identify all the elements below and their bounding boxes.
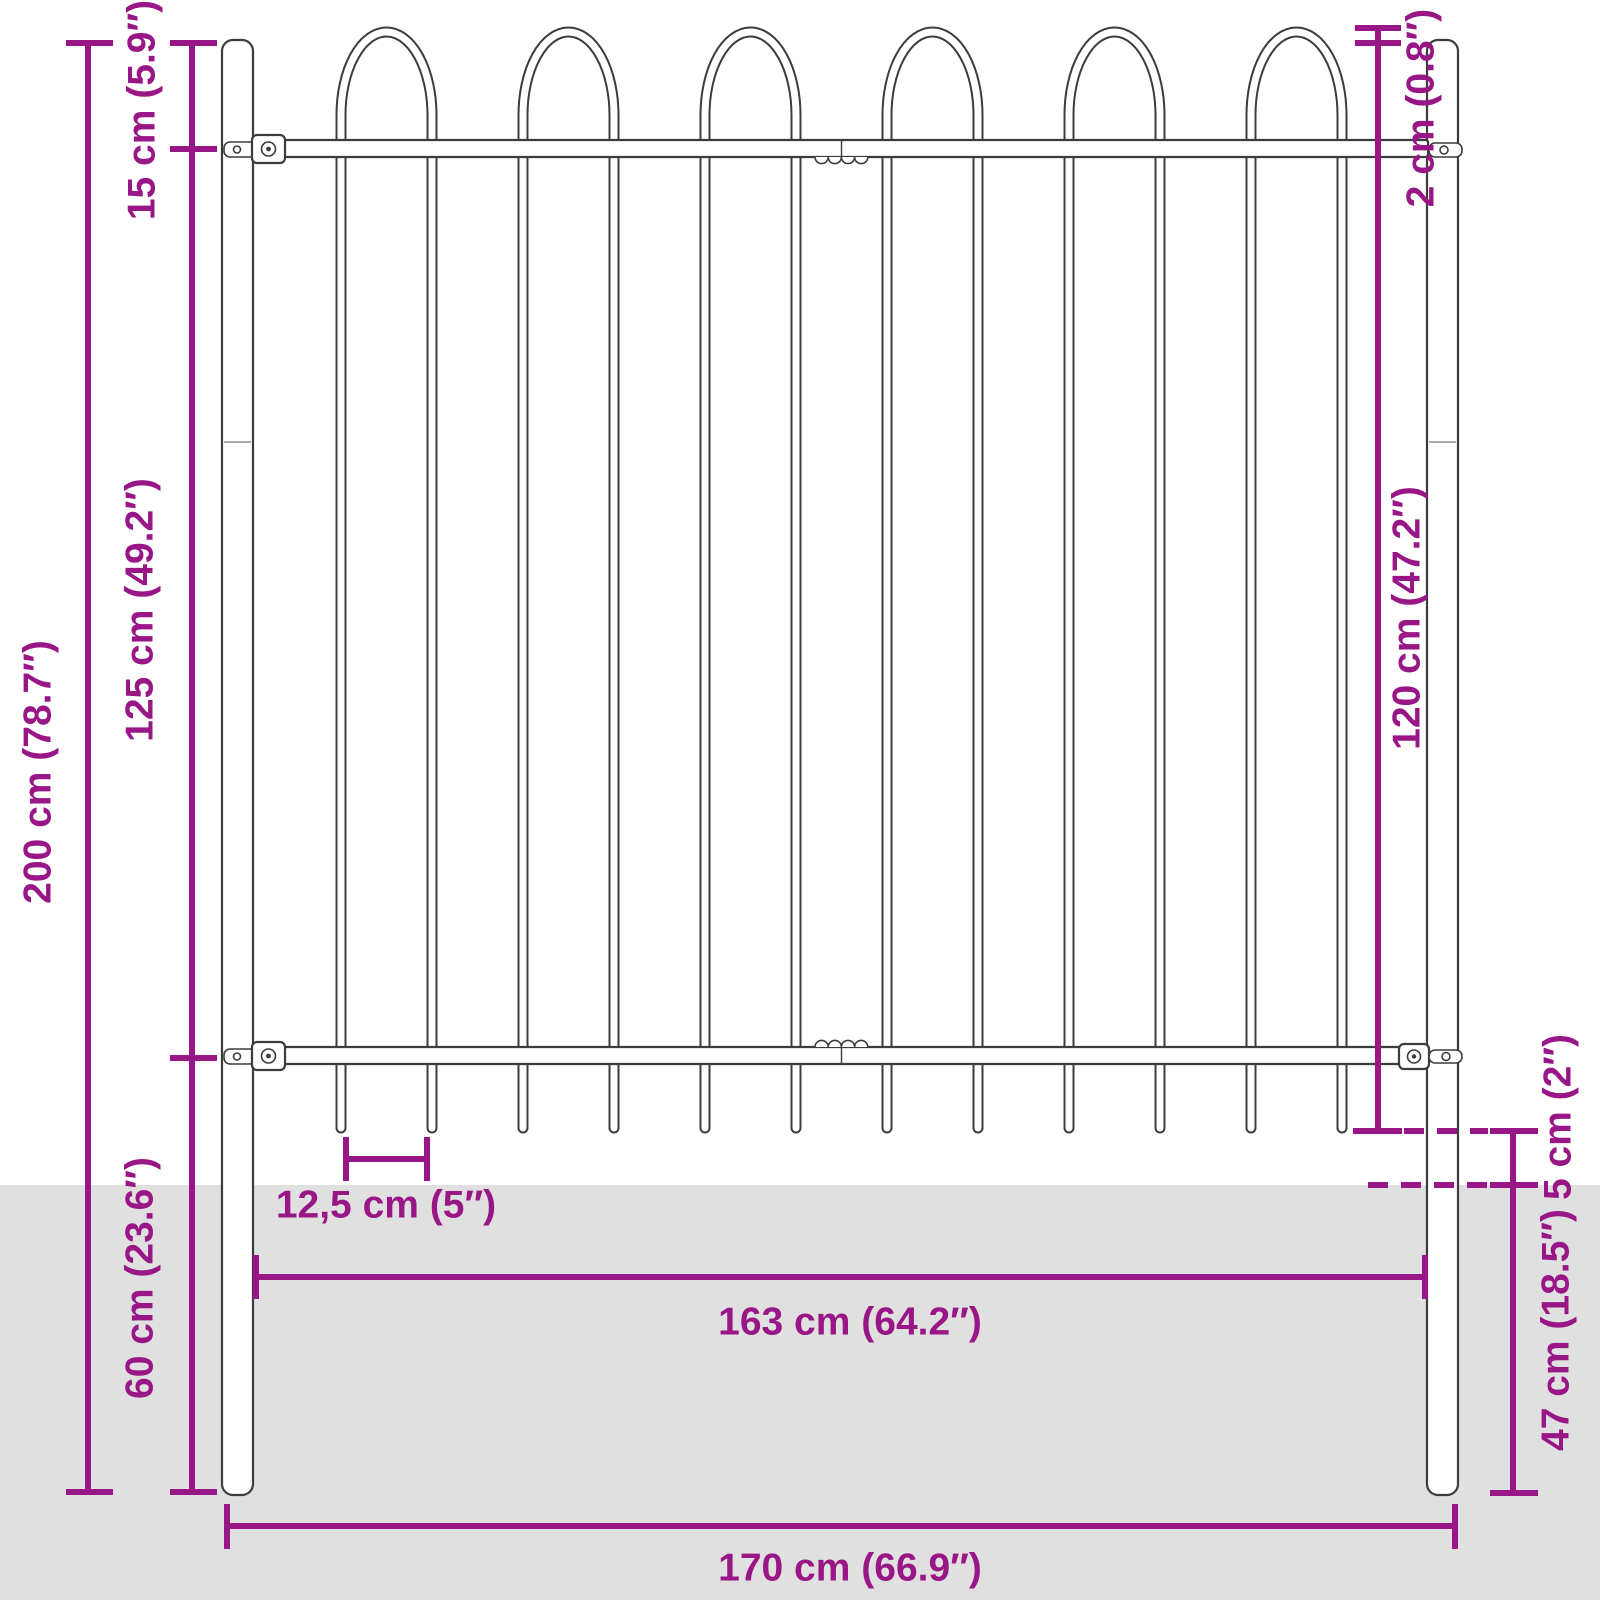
fence-dimension-diagram: 200 cm (78.7″) 15 cm (5.9″) 125 cm (49.2…: [0, 0, 1600, 1600]
hoop-bar-pair: [705, 32, 796, 1128]
right-post: [1427, 40, 1458, 1495]
dim-bar-spacing: 12,5 cm (5″): [276, 1137, 496, 1227]
dim-bar-length-label: 120 cm (47.2″): [1386, 486, 1429, 750]
bottom-rail: [252, 1047, 1428, 1064]
dim-tube-diameter-label: 2 cm (0.8″): [1400, 9, 1443, 208]
hoop-bar-pair: [1251, 32, 1342, 1128]
dim-outer-width-label: 170 cm (66.9″): [718, 1547, 982, 1590]
dim-above-ground-gap-label: 5 cm (2″): [1537, 1034, 1580, 1200]
dim-bar-spacing-label: 12,5 cm (5″): [276, 1184, 496, 1227]
dim-below-rail-label: 60 cm (23.6″): [119, 1157, 162, 1399]
dim-panel-height-label: 125 cm (49.2″): [119, 478, 162, 742]
diagram-canvas: 200 cm (78.7″) 15 cm (5.9″) 125 cm (49.2…: [0, 0, 1600, 1600]
left-post: [222, 40, 253, 1495]
dim-total-height-label: 200 cm (78.7″): [17, 640, 60, 904]
hoop-bar-pair: [523, 32, 614, 1128]
hoop-bar-pair: [341, 32, 432, 1128]
hoop-bars: [341, 32, 1342, 1128]
dim-post-depth-label: 47 cm (18.5″): [1535, 1209, 1578, 1451]
hoop-bar-pair: [1069, 32, 1160, 1128]
dim-inner-width-label: 163 cm (64.2″): [718, 1301, 982, 1344]
dim-top-section-label: 15 cm (5.9″): [121, 0, 164, 220]
hoop-bar-pair: [887, 32, 978, 1128]
top-rail: [252, 140, 1428, 157]
